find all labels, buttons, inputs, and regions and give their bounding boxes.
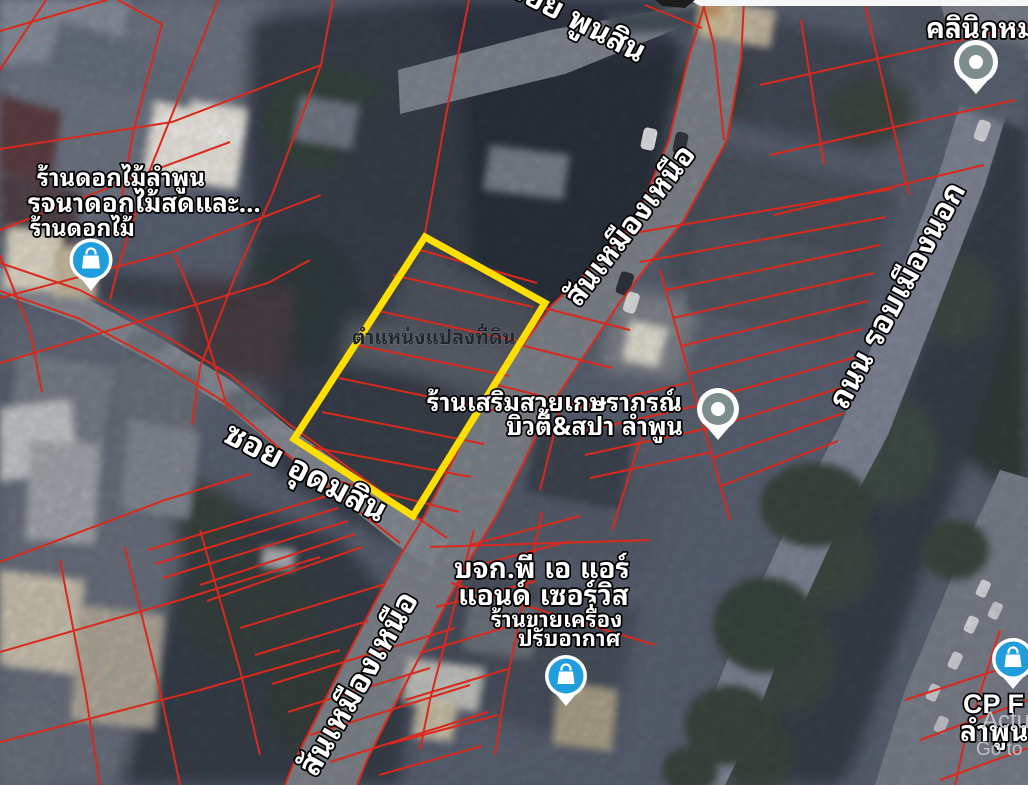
- svg-text:Go to: Go to: [976, 739, 1022, 760]
- svg-text:Actu: Actu: [982, 707, 1028, 734]
